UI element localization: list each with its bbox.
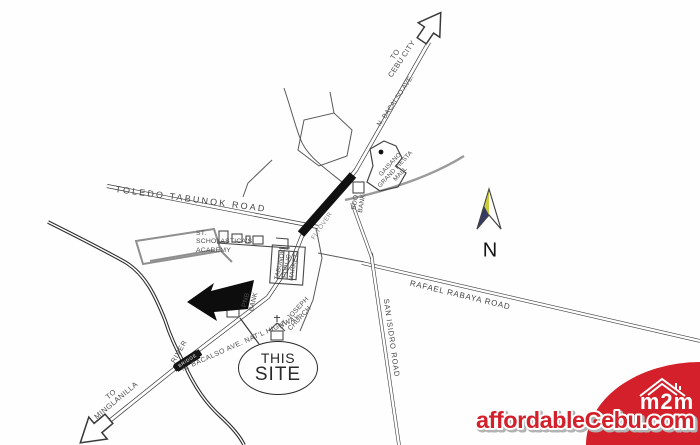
vicinity-map: TO CEBU CITY N. BACALSO AVE. GAISANO GRA… xyxy=(0,0,700,445)
watermark-text: affordableCebu.com xyxy=(476,407,694,433)
watermark-layer: affordableCebu.com affordableCebu.com xyxy=(0,0,700,445)
